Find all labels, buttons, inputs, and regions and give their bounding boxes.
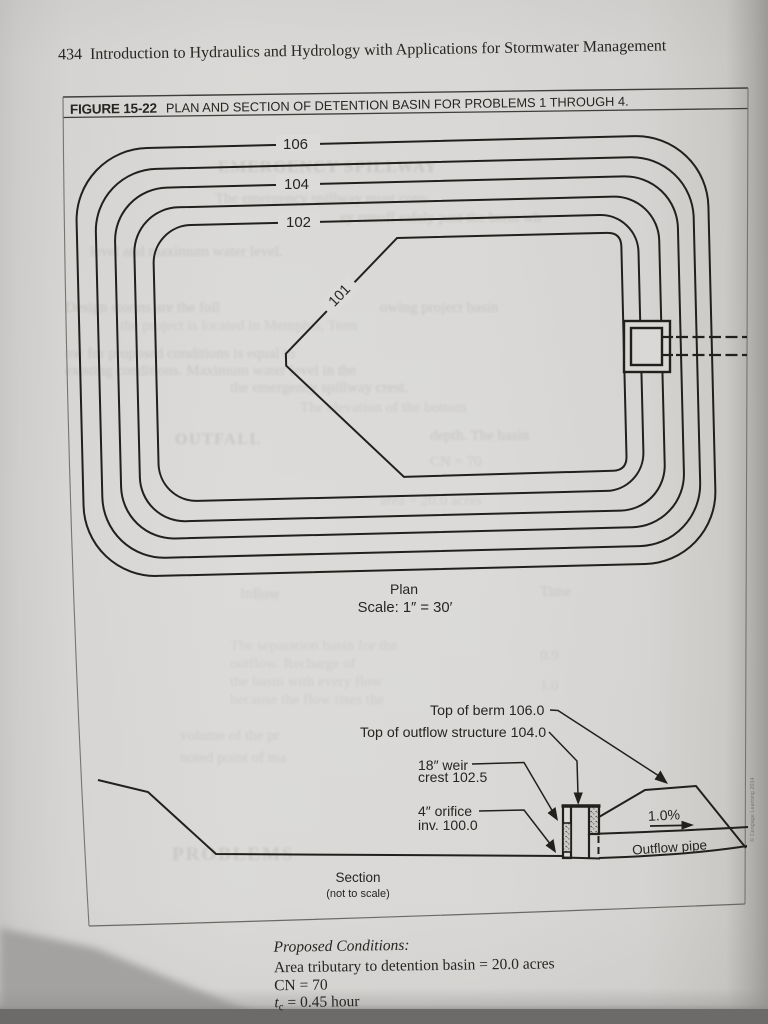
svg-text:106: 106 — [283, 136, 308, 153]
svg-text:104: 104 — [284, 176, 309, 193]
svg-text:102: 102 — [286, 214, 311, 231]
svg-text:because the flow rises the: because the flow rises the — [230, 692, 384, 708]
svg-text:© Cengage Learning 2014: © Cengage Learning 2014 — [749, 777, 756, 842]
svg-text:CN = 70: CN = 70 — [274, 977, 328, 995]
svg-text:tc = 0.45 hour: tc = 0.45 hour — [274, 993, 360, 1013]
svg-text:The separation basin for the: The separation basin for the — [230, 638, 398, 654]
svg-text:owing project basin: owing project basin — [380, 300, 499, 316]
svg-text:depth. The basin: depth. The basin — [430, 428, 530, 444]
svg-text:volume of the pr: volume of the pr — [180, 728, 280, 744]
svg-text:the emergency spillway crest.: the emergency spillway crest. — [230, 380, 408, 396]
svg-text:inv. 100.0: inv. 100.0 — [418, 817, 478, 833]
svg-text:FIGURE 15-22: FIGURE 15-22 — [70, 101, 157, 117]
svg-text:outflow. Recharge of: outflow. Recharge of — [230, 656, 356, 672]
svg-text:(cfs): (cfs) — [255, 588, 279, 603]
svg-text:Scale: 1″ = 30′: Scale: 1″ = 30′ — [358, 600, 453, 616]
svg-text:Top of outflow structure 104.0: Top of outflow structure 104.0 — [360, 725, 546, 741]
svg-text:1.0%: 1.0% — [648, 806, 681, 824]
svg-text:noted point of ma: noted point of ma — [180, 750, 287, 766]
svg-text:the basin with every flow: the basin with every flow — [230, 674, 383, 690]
svg-text:Top of berm 106.0: Top of berm 106.0 — [430, 703, 544, 719]
svg-text:crest 102.5: crest 102.5 — [418, 769, 487, 785]
svg-text:Section: Section — [335, 870, 380, 885]
svg-text:Plan: Plan — [390, 581, 418, 597]
svg-text:existing conditions. Maximum w: existing conditions. Maximum water level… — [65, 363, 357, 379]
svg-text:CN = 70: CN = 70 — [430, 454, 482, 470]
svg-text:1.0: 1.0 — [540, 678, 559, 694]
svg-text:Proposed Conditions:: Proposed Conditions: — [272, 937, 409, 956]
svg-text:OUTFALL: OUTFALL — [175, 431, 262, 448]
svg-text:Design storms are the foll: Design storms are the foll — [65, 300, 220, 316]
svg-text:0.9: 0.9 — [540, 648, 559, 664]
svg-text:Time: Time — [540, 584, 571, 600]
svg-text:(not to scale): (not to scale) — [326, 888, 390, 900]
svg-text:level and maximum water level.: level and maximum water level. — [90, 244, 283, 260]
